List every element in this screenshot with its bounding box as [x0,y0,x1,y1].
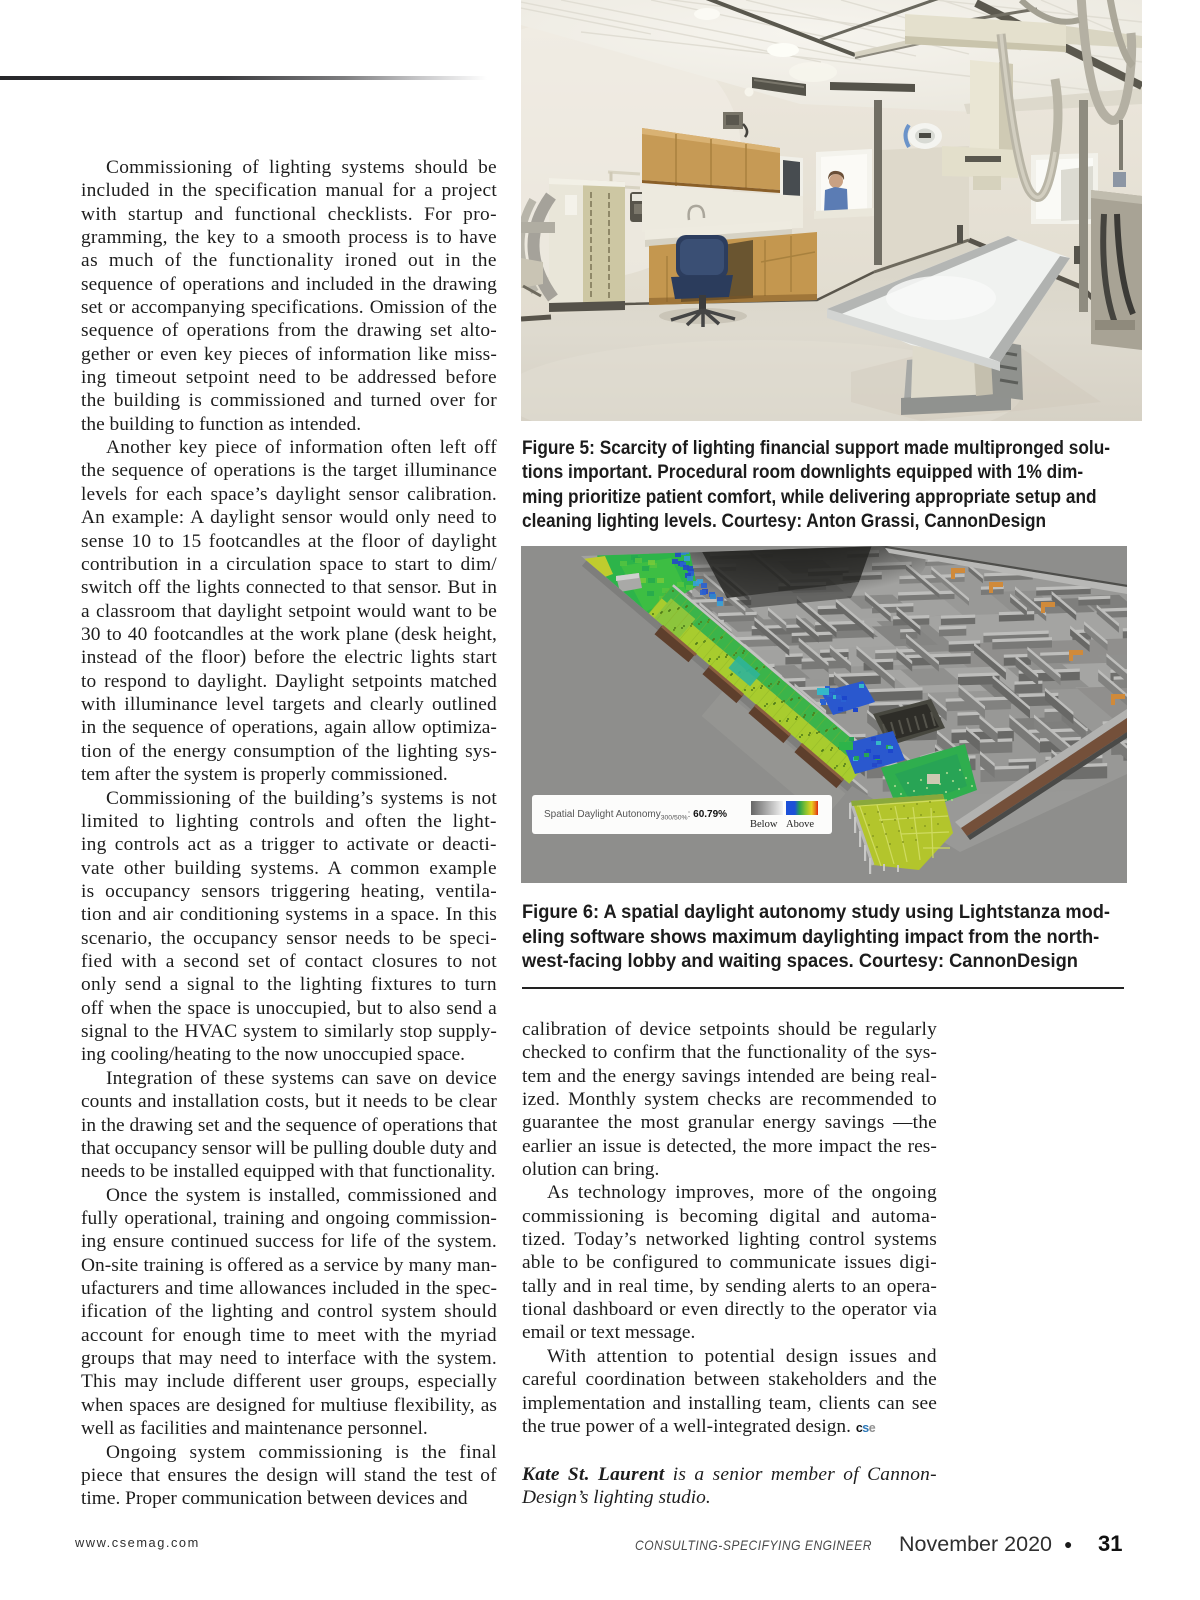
svg-text:Spatial Daylight Autonomy300/5: Spatial Daylight Autonomy300/50%: 60.79% [544,809,727,822]
svg-text:Below: Below [750,819,778,830]
svg-text:Above: Above [786,819,814,830]
